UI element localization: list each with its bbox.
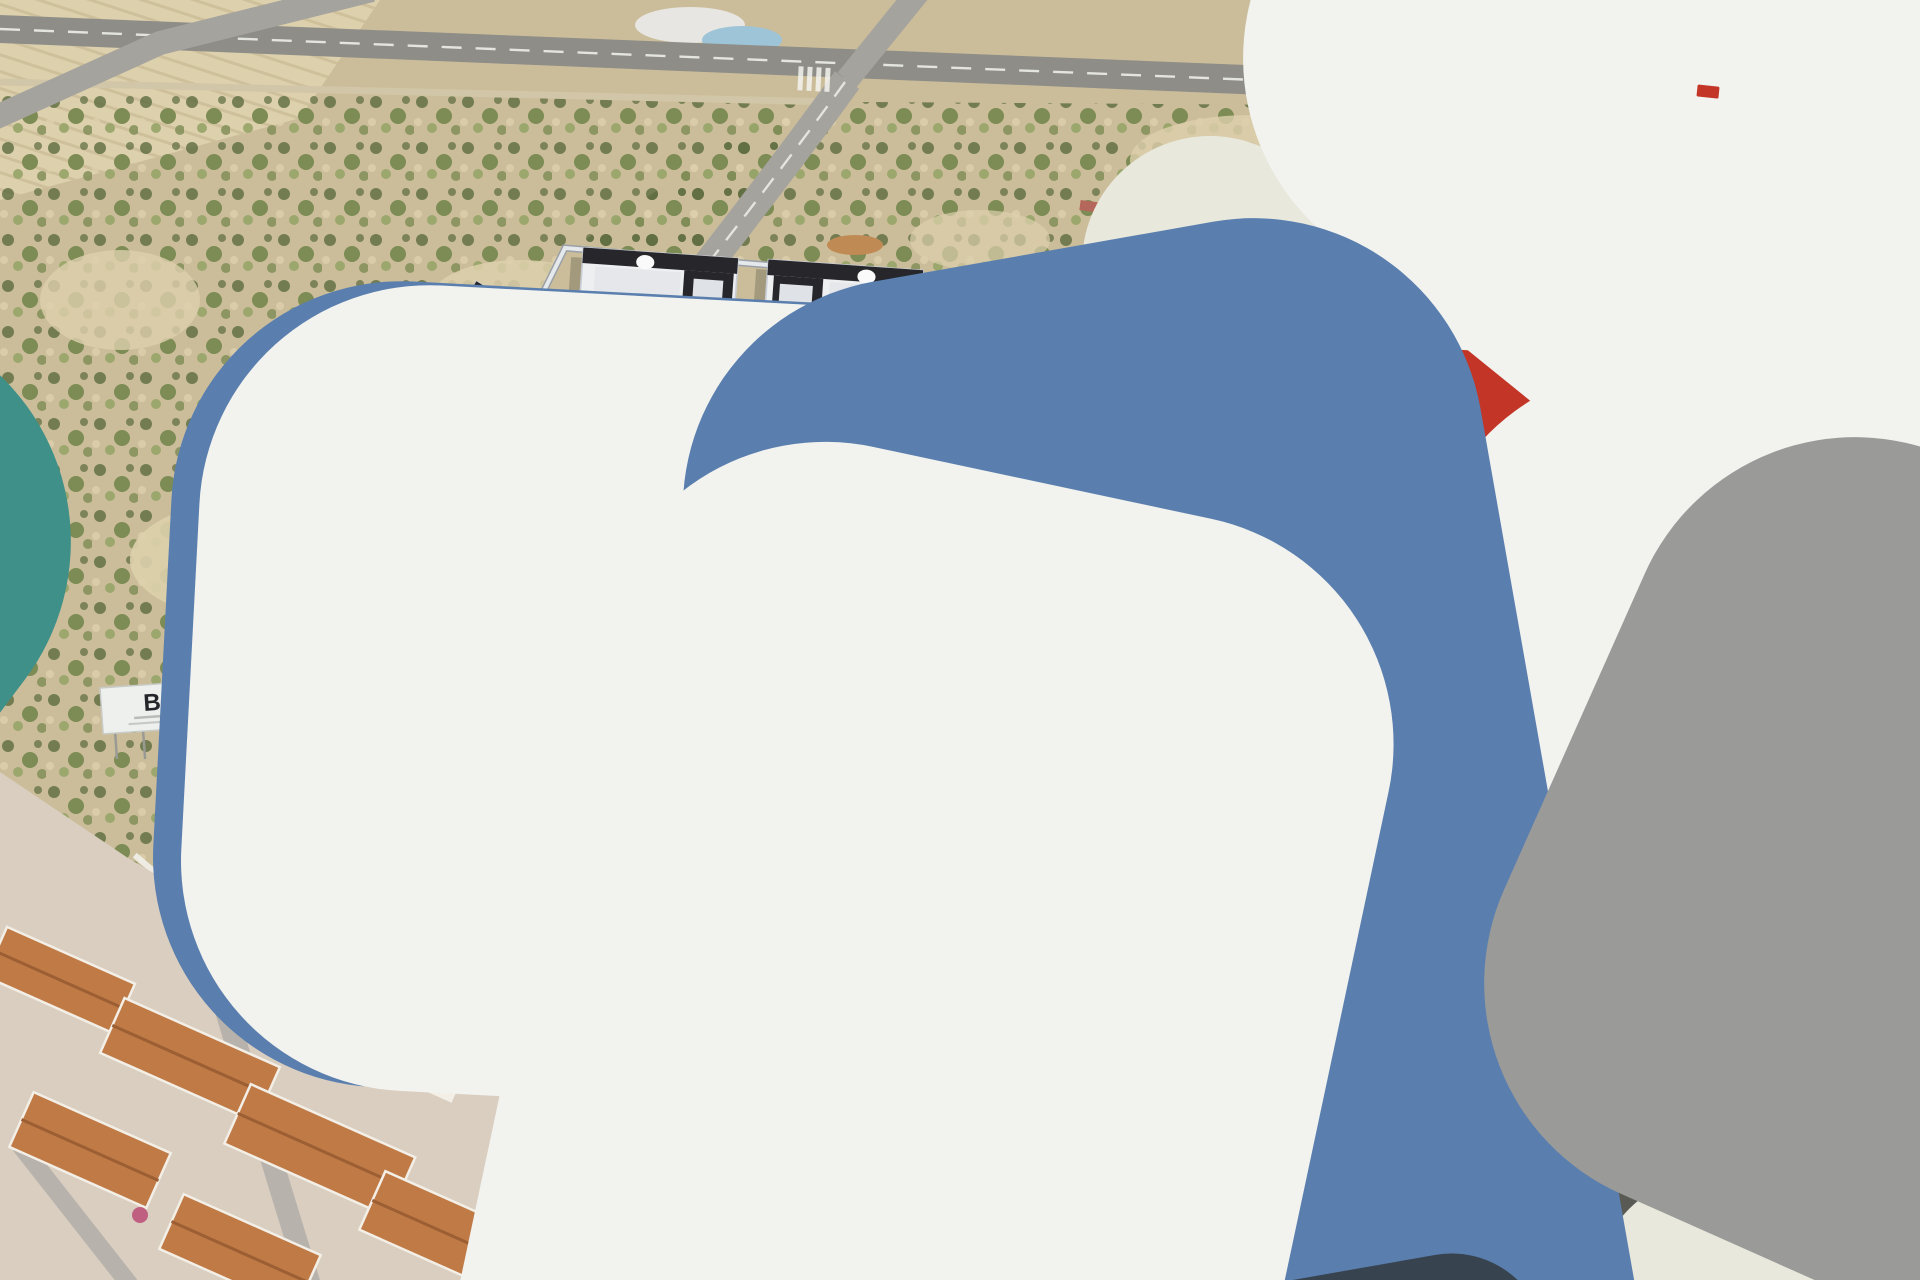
- dirt-mound: [827, 235, 883, 255]
- sand-patch: [40, 250, 200, 350]
- billboard-logo: B: [143, 689, 162, 717]
- bougainvillea-bush: [132, 1207, 148, 1223]
- aerial-render: B: [0, 0, 1920, 1280]
